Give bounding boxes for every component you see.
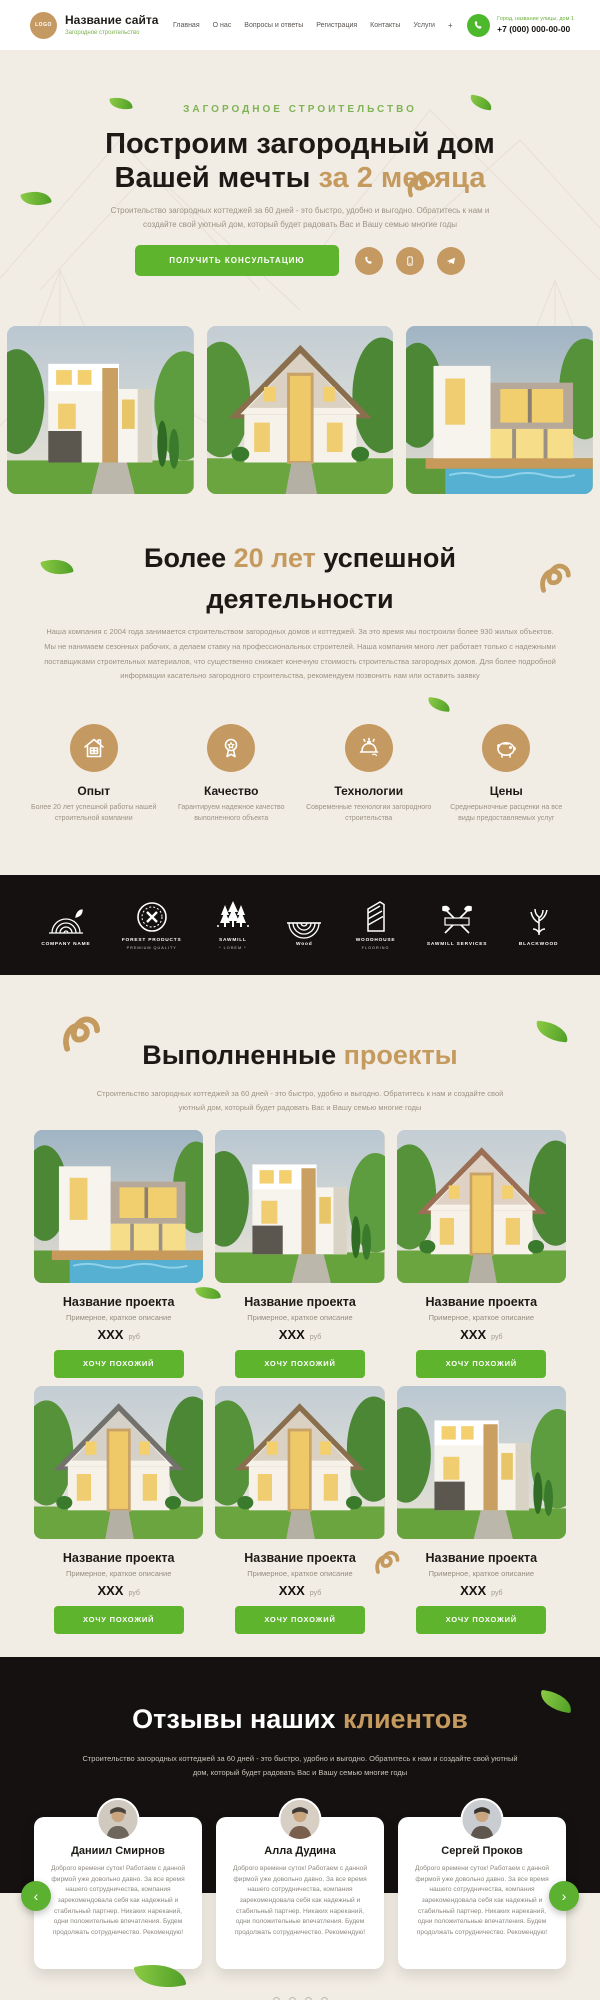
project-card-6: Название проекта Примерное, краткое опис…	[397, 1386, 566, 1634]
wood-house-icon	[356, 899, 396, 935]
site-tagline: Загородное строительство	[65, 30, 158, 36]
nav-item-4[interactable]: Регистрация	[316, 22, 357, 29]
project-price: XXX	[97, 1583, 123, 1598]
want-similar-button[interactable]: ХОЧУ ПОХОЖИЙ	[54, 1350, 184, 1378]
review-card-3: Сергей Проков Доброго времени суток! Раб…	[398, 1817, 566, 1969]
about-section: Более 20 лет успешной деятельности Наша …	[0, 538, 600, 824]
want-similar-button[interactable]: ХОЧУ ПОХОЖИЙ	[416, 1606, 546, 1634]
consultation-button[interactable]: ПОЛУЧИТЬ КОНСУЛЬТАЦИЮ	[135, 245, 338, 276]
header-contact: Город, название улицы, дом 1 +7 (000) 00…	[467, 14, 574, 37]
crossed-axes-icon	[437, 903, 477, 939]
oak-tree-icon	[519, 903, 559, 939]
project-photo	[215, 1386, 384, 1539]
reviewer-avatar	[461, 1798, 504, 1841]
projects-title-black: Выполненные	[142, 1040, 336, 1070]
social-buttons	[355, 247, 465, 275]
partner-logo-2: FOREST PRODUCTSPREMIUM QUALITY	[122, 899, 182, 950]
main-nav: ГлавнаяО насВопросы и ответыРегистрацияК…	[173, 21, 453, 30]
projects-title: Выполненные проекты	[80, 1035, 520, 1076]
project-photo	[34, 1386, 203, 1539]
address: Город, название улицы, дом 1	[497, 16, 574, 22]
partner-name: SAWMILL	[219, 938, 247, 943]
site-name: Название сайта	[65, 14, 158, 27]
project-description: Примерное, краткое описание	[397, 1313, 566, 1322]
partner-logo-4: Wood	[284, 903, 324, 947]
review-text: Доброго времени суток! Работаем с данной…	[228, 1864, 372, 1939]
review-text: Доброго времени суток! Работаем с данной…	[410, 1864, 554, 1939]
hero-title: Построим загородный дом Вашей мечты за 2…	[30, 127, 570, 195]
partners-strip: COMPANY NAME FOREST PRODUCTSPREMIUM QUAL…	[0, 875, 600, 975]
telegram-icon	[445, 255, 457, 267]
reviews-row: Даниил Смирнов Доброго времени суток! Ра…	[0, 1798, 600, 1969]
partner-logo-3: SAWMILL* LOREM *	[213, 899, 253, 950]
project-photo	[397, 1130, 566, 1283]
helmet-icon	[345, 724, 393, 772]
project-card-5: Название проекта Примерное, краткое опис…	[215, 1386, 384, 1634]
project-card-1: Название проекта Примерное, краткое опис…	[34, 1130, 203, 1378]
project-title: Название проекта	[215, 1551, 384, 1565]
hero-house-photo-1	[7, 326, 194, 494]
partner-name: Wood	[296, 942, 312, 947]
hero-section: ЗАГОРОДНОЕ СТРОИТЕЛЬСТВО Построим загоро…	[0, 50, 600, 494]
partner-name: WOODHOUSE	[356, 938, 396, 943]
want-similar-button[interactable]: ХОЧУ ПОХОЖИЙ	[235, 1606, 365, 1634]
project-card-4: Название проекта Примерное, краткое опис…	[34, 1386, 203, 1634]
reviews-section: ‹ › Отзывы наших клиентов Строительство …	[0, 1657, 600, 2000]
project-currency: руб	[128, 1590, 139, 1597]
hero-title-highlight: за 2 месяца	[319, 162, 486, 194]
project-photo	[215, 1130, 384, 1283]
phone-icon[interactable]	[467, 14, 490, 37]
reviewer-name: Сергей Проков	[410, 1845, 554, 1857]
hero-kicker: ЗАГОРОДНОЕ СТРОИТЕЛЬСТВО	[0, 104, 600, 115]
feature-text: Современные технологии загородного строи…	[305, 803, 433, 825]
hero-cta-row: ПОЛУЧИТЬ КОНСУЛЬТАЦИЮ	[0, 245, 600, 276]
feature-text: Среднерыночные расценки на все виды пред…	[443, 803, 571, 825]
projects-section: Выполненные проекты Строительство загоро…	[0, 975, 600, 1634]
hero-gallery	[0, 326, 600, 494]
project-currency: руб	[310, 1590, 321, 1597]
viber-icon	[404, 255, 416, 267]
project-description: Примерное, краткое описание	[397, 1569, 566, 1578]
round-badge-icon	[132, 899, 172, 935]
partner-subtitle: FLOORING	[362, 946, 390, 950]
project-description: Примерное, краткое описание	[34, 1313, 203, 1322]
project-photo	[34, 1130, 203, 1283]
partner-logo-5: WOODHOUSEFLOORING	[356, 899, 396, 950]
log-rings-icon	[46, 903, 86, 939]
project-price: XXX	[279, 1327, 305, 1342]
nav-more-toggle[interactable]: +	[448, 21, 453, 30]
about-title: Более 20 лет успешной деятельности	[80, 538, 520, 619]
project-title: Название проекта	[34, 1551, 203, 1565]
award-icon	[207, 724, 255, 772]
projects-grid: Название проекта Примерное, краткое опис…	[0, 1130, 600, 1634]
about-text: Наша компания с 2004 года занимается стр…	[40, 625, 560, 684]
partner-subtitle: * LOREM *	[219, 946, 247, 950]
nav-item-2[interactable]: О нас	[213, 22, 232, 29]
reviewer-avatar	[97, 1798, 140, 1841]
partner-name: BLACKWOOD	[519, 942, 558, 947]
about-title-highlight: 20 лет	[234, 543, 316, 573]
project-title: Название проекта	[34, 1295, 203, 1309]
feature-1: Опыт Более 20 лет успешной работы нашей …	[30, 724, 158, 825]
partner-logo-6: SAWMILL SERVICES	[427, 903, 487, 947]
reviews-title-white: Отзывы наших	[132, 1704, 335, 1734]
feature-title: Технологии	[305, 784, 433, 798]
reviews-title-highlight: клиентов	[343, 1704, 468, 1734]
feature-text: Гарантируем надежное качество выполненно…	[168, 803, 296, 825]
project-photo	[397, 1386, 566, 1539]
reviews-title: Отзывы наших клиентов	[80, 1699, 520, 1740]
review-card-2: Алла Дудина Доброго времени суток! Работ…	[216, 1817, 384, 1969]
nav-item-1[interactable]: Главная	[173, 22, 200, 29]
reviewer-name: Даниил Смирнов	[46, 1845, 190, 1857]
piggy-bank-icon	[482, 724, 530, 772]
project-description: Примерное, краткое описание	[34, 1569, 203, 1578]
nav-item-6[interactable]: Услуги	[413, 22, 435, 29]
project-description: Примерное, краткое описание	[215, 1313, 384, 1322]
projects-subtitle: Строительство загородных коттеджей за 60…	[85, 1087, 515, 1116]
reviews-next-button[interactable]: ›	[549, 1881, 579, 1911]
features-row: Опыт Более 20 лет успешной работы нашей …	[0, 724, 600, 825]
projects-title-highlight: проекты	[344, 1040, 458, 1070]
partner-name: COMPANY NAME	[41, 942, 90, 947]
reviews-subtitle: Строительство загородных коттеджей за 60…	[80, 1752, 520, 1780]
half-log-icon	[284, 903, 324, 939]
project-currency: руб	[491, 1334, 502, 1341]
viber-button[interactable]	[396, 247, 424, 275]
feature-4: Цены Среднерыночные расценки на все виды…	[443, 724, 571, 825]
feature-title: Цены	[443, 784, 571, 798]
feature-title: Качество	[168, 784, 296, 798]
review-text: Доброго времени суток! Работаем с данной…	[46, 1864, 190, 1939]
nav-item-3[interactable]: Вопросы и ответы	[244, 22, 303, 29]
header: LOGO Название сайта Загородное строитель…	[0, 0, 600, 50]
project-price: XXX	[460, 1583, 486, 1598]
want-similar-button[interactable]: ХОЧУ ПОХОЖИЙ	[54, 1606, 184, 1634]
project-title: Название проекта	[215, 1295, 384, 1309]
reviewer-avatar	[279, 1798, 322, 1841]
logo-text: LOGO	[35, 22, 52, 28]
hero-title-line2: Вашей мечты	[115, 162, 311, 194]
logo: LOGO	[30, 12, 57, 39]
hero-house-photo-2	[207, 326, 394, 494]
project-price: XXX	[460, 1327, 486, 1342]
want-similar-button[interactable]: ХОЧУ ПОХОЖИЙ	[416, 1350, 546, 1378]
partner-name: FOREST PRODUCTS	[122, 938, 182, 943]
hero-title-line1: Построим загородный дом	[105, 128, 495, 160]
telegram-button[interactable]	[437, 247, 465, 275]
project-currency: руб	[491, 1590, 502, 1597]
feature-text: Более 20 лет успешной работы нашей строи…	[30, 803, 158, 825]
project-title: Название проекта	[397, 1295, 566, 1309]
about-title-pre: Более	[144, 543, 226, 573]
partner-subtitle: PREMIUM QUALITY	[127, 946, 177, 950]
pine-trees-icon	[213, 899, 253, 935]
house-icon	[70, 724, 118, 772]
project-currency: руб	[128, 1334, 139, 1341]
project-card-2: Название проекта Примерное, краткое опис…	[215, 1130, 384, 1378]
partner-name: SAWMILL SERVICES	[427, 942, 487, 947]
whatsapp-icon	[363, 255, 375, 267]
partner-logo-7: BLACKWOOD	[519, 903, 559, 947]
brand[interactable]: LOGO Название сайта Загородное строитель…	[30, 12, 158, 39]
hero-house-photo-3	[406, 326, 593, 494]
project-title: Название проекта	[397, 1551, 566, 1565]
feature-title: Опыт	[30, 784, 158, 798]
reviewer-name: Алла Дудина	[228, 1845, 372, 1857]
phone-number[interactable]: +7 (000) 000-00-00	[497, 24, 574, 34]
project-price: XXX	[97, 1327, 123, 1342]
project-currency: руб	[310, 1334, 321, 1341]
hero-subtitle: Строительство загородных коттеджей за 60…	[110, 204, 490, 232]
whatsapp-button[interactable]	[355, 247, 383, 275]
feature-2: Качество Гарантируем надежное качество в…	[168, 724, 296, 825]
nav-item-5[interactable]: Контакты	[370, 22, 400, 29]
review-card-1: Даниил Смирнов Доброго времени суток! Ра…	[34, 1817, 202, 1969]
partner-logo-1: COMPANY NAME	[41, 903, 90, 947]
project-card-3: Название проекта Примерное, краткое опис…	[397, 1130, 566, 1378]
want-similar-button[interactable]: ХОЧУ ПОХОЖИЙ	[235, 1350, 365, 1378]
page: LOGO Название сайта Загородное строитель…	[0, 0, 600, 2000]
project-description: Примерное, краткое описание	[215, 1569, 384, 1578]
project-price: XXX	[279, 1583, 305, 1598]
reviews-prev-button[interactable]: ‹	[21, 1881, 51, 1911]
feature-3: Технологии Современные технологии загоро…	[305, 724, 433, 825]
